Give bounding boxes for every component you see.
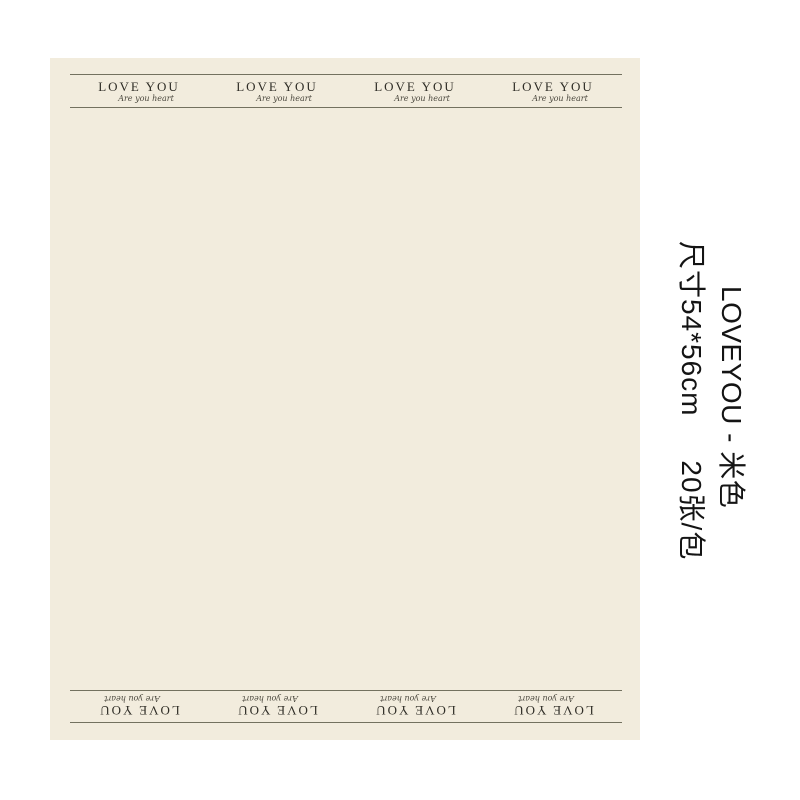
logo-script: Are you heart: [256, 94, 312, 104]
logo-title: LOVE YOU: [98, 80, 180, 93]
logo-script: Are you heart: [118, 94, 174, 104]
caption-product-title: LOVEYOU - 米色: [716, 286, 746, 508]
logo-script: Are you heart: [518, 694, 574, 704]
logo-unit: LOVE YOU Are you heart: [208, 694, 346, 720]
logo-script: Are you heart: [380, 694, 436, 704]
bottom-border-band: LOVE YOU Are you heart LOVE YOU Are you …: [70, 690, 622, 723]
logo-unit: LOVE YOU Are you heart: [70, 694, 208, 720]
logo-title: LOVE YOU: [374, 705, 456, 718]
wrapping-paper: LOVE YOU Are you heart LOVE YOU Are you …: [50, 58, 640, 740]
logo-unit: LOVE YOU Are you heart: [346, 694, 484, 720]
logo-unit: LOVE YOU Are you heart: [70, 78, 208, 104]
logo-unit: LOVE YOU Are you heart: [484, 694, 622, 720]
logo-script: Are you heart: [104, 694, 160, 704]
logo-script: Are you heart: [532, 94, 588, 104]
top-border-band: LOVE YOU Are you heart LOVE YOU Are you …: [70, 74, 622, 108]
logo-title: LOVE YOU: [236, 705, 318, 718]
logo-title: LOVE YOU: [98, 705, 180, 718]
logo-unit: LOVE YOU Are you heart: [208, 78, 346, 104]
logo-title: LOVE YOU: [512, 80, 594, 93]
logo-script: Are you heart: [394, 94, 450, 104]
caption-size-spec: 尺寸54*56cm 20张/包: [676, 241, 706, 560]
logo-title: LOVE YOU: [374, 80, 456, 93]
logo-title: LOVE YOU: [236, 80, 318, 93]
logo-unit: LOVE YOU Are you heart: [484, 78, 622, 104]
logo-unit: LOVE YOU Are you heart: [346, 78, 484, 104]
logo-title: LOVE YOU: [512, 705, 594, 718]
logo-script: Are you heart: [242, 694, 298, 704]
